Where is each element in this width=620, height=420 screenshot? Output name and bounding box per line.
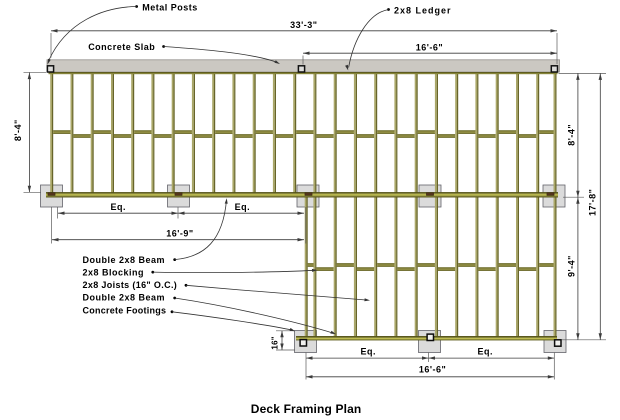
svg-text:2x8 Blocking: 2x8 Blocking <box>83 268 145 278</box>
svg-text:Deck Framing Plan: Deck Framing Plan <box>251 402 362 416</box>
svg-text:Double 2x8 Beam: Double 2x8 Beam <box>83 293 166 303</box>
svg-text:Eq.: Eq. <box>361 347 377 357</box>
svg-text:2x8 Ledger: 2x8 Ledger <box>394 5 452 15</box>
svg-text:8'-4": 8'-4" <box>13 119 23 141</box>
svg-text:16'-9": 16'-9" <box>166 229 193 239</box>
svg-text:9'-4": 9'-4" <box>566 255 576 277</box>
svg-text:16'-6": 16'-6" <box>419 364 446 374</box>
svg-text:Concrete Footings: Concrete Footings <box>83 305 167 315</box>
svg-text:Eq.: Eq. <box>111 202 127 212</box>
svg-text:16": 16" <box>271 336 280 349</box>
svg-text:17'-8": 17'-8" <box>587 189 597 216</box>
svg-text:8'-4": 8'-4" <box>566 124 576 146</box>
svg-text:Double 2x8 Beam: Double 2x8 Beam <box>83 255 166 265</box>
svg-text:Eq.: Eq. <box>477 347 493 357</box>
svg-text:16'-6": 16'-6" <box>416 42 443 52</box>
svg-text:Eq.: Eq. <box>235 202 251 212</box>
svg-text:Concrete Slab: Concrete Slab <box>88 42 155 52</box>
svg-text:Metal Posts: Metal Posts <box>142 2 198 12</box>
svg-text:2x8 Joists (16" O.C.): 2x8 Joists (16" O.C.) <box>83 280 178 290</box>
svg-text:33'-3": 33'-3" <box>290 20 317 30</box>
